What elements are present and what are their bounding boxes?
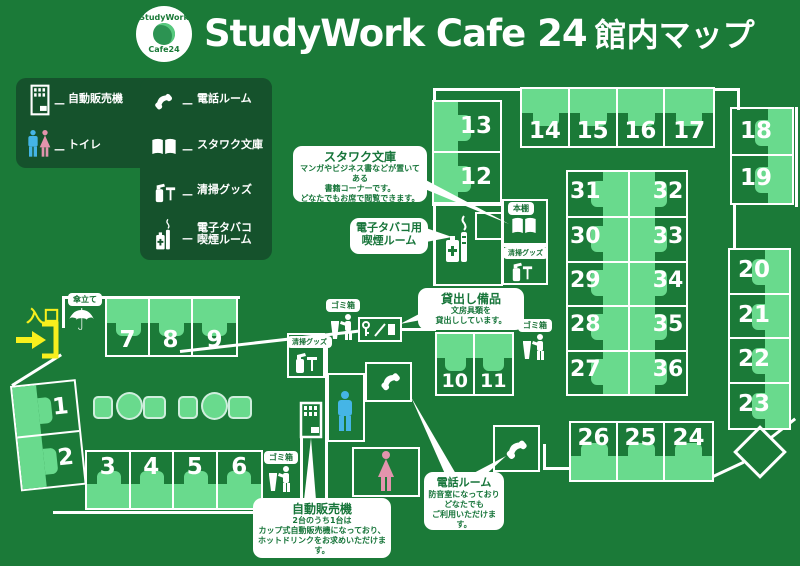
lounge-table (178, 396, 198, 419)
seat-24: 24 (665, 423, 712, 480)
chair (37, 396, 53, 423)
seat-number-12: 12 (460, 164, 492, 190)
wall (795, 107, 798, 207)
seat-5: 5 (174, 452, 218, 508)
bookshelf-pill: 本棚 (508, 202, 534, 215)
seat-number-17: 17 (665, 118, 713, 144)
seat-number-26: 26 (571, 425, 616, 451)
callout-smoking-title: 電子タバコ用 喫煙ルーム (354, 221, 424, 247)
umbrella-icon: ☂ (68, 306, 95, 336)
callout-phone-body: 防音室になっており (428, 490, 500, 500)
cleaning-goods-pill-left: 清掃グッズ (287, 336, 332, 348)
seat-number-34: 34 (652, 268, 684, 293)
legend-dash: — (54, 143, 65, 156)
seat-number-1: 1 (51, 393, 70, 421)
seat-15: 15 (570, 89, 618, 146)
desk-center-line (628, 172, 630, 394)
callout-phone-body: どなたでも (428, 500, 500, 510)
ecig-icon-map (444, 214, 472, 266)
seat-number-7: 7 (107, 327, 148, 353)
trash-icon-1 (266, 463, 296, 493)
seat-group-g1312: 1312 (432, 100, 502, 206)
seat-number-5: 5 (174, 454, 216, 480)
trash-pill-2: ゴミ箱 (326, 299, 360, 312)
seat-group-g789: 789 (105, 297, 238, 357)
seat-17: 17 (665, 89, 713, 146)
seat-number-29: 29 (570, 268, 600, 293)
lounge-table (228, 396, 252, 419)
seat-group-g1011: 1011 (435, 332, 514, 396)
callout-bunko-title: スタワク文庫 (297, 150, 423, 164)
trash-icon-3 (520, 331, 550, 361)
seat-group-g36: 3456 (85, 450, 263, 510)
seat-number-32: 32 (652, 179, 684, 204)
umbrella-stand-pill: 傘立て (68, 293, 102, 306)
seat-number-13: 13 (460, 113, 492, 139)
lounge-table (143, 396, 166, 419)
desk-row-divider (568, 305, 686, 307)
desk-row-divider (568, 216, 686, 218)
toilet-male-icon (336, 391, 354, 433)
seat-number-8: 8 (150, 327, 191, 353)
seat-number-25: 25 (618, 425, 663, 451)
legend-dash: — (54, 97, 65, 110)
cleaning-icon-right (509, 259, 535, 283)
seat-number-4: 4 (131, 454, 173, 480)
seat-number-20: 20 (738, 257, 770, 283)
seat-21: 21 (730, 295, 789, 340)
wall (710, 461, 744, 479)
seat-19: 19 (732, 156, 792, 203)
seat-number-16: 16 (618, 118, 664, 144)
callout-vending-title: 自動販売機 (257, 502, 387, 516)
logo-top-text: StudyWork (139, 14, 189, 22)
seat-group-g2023: 20212223 (728, 248, 791, 430)
seat-10: 10 (437, 334, 475, 394)
callout-vending-body: カップ式自動販売機になっており、 (257, 526, 387, 536)
seat-number-18: 18 (740, 118, 772, 144)
seat-14: 14 (522, 89, 570, 146)
callout-lending-body: 貸出ししています。 (422, 316, 520, 326)
seat-6: 6 (218, 452, 262, 508)
seat-12: 12 (434, 153, 500, 204)
seat-number-19: 19 (740, 165, 772, 191)
lounge-table (93, 396, 113, 419)
ecig-icon (152, 218, 176, 252)
callout-vending: 自動販売機 2台のうち1台は カップ式自動販売機になっており、 ホットドリンクを… (253, 498, 391, 558)
book-icon (150, 137, 178, 157)
phone-icon (152, 90, 174, 112)
callout-bunko-body: どなたでもお席で閲覧できます。 (297, 194, 423, 204)
smoking-room-inner (475, 212, 503, 240)
legend-label-phone: 電話ルーム (197, 93, 252, 105)
lounge-table-round (201, 392, 228, 420)
seat-3: 3 (87, 452, 131, 508)
callout-lending: 貸出し備品 文房具類を 貸出ししています。 (418, 288, 524, 330)
legend-dash: — (182, 232, 193, 245)
callout-phone: 電話ルーム 防音室になっており どなたでも ご利用いただけます。 (424, 472, 504, 530)
seat-number-3: 3 (87, 454, 129, 480)
seat-group-desk: 31323033293428352736 (566, 170, 688, 396)
seat-number-9: 9 (193, 327, 236, 353)
desk-row-divider (568, 261, 686, 263)
cleaning-goods-pill-right: 清掃グッズ (503, 247, 548, 259)
seat-8: 8 (150, 299, 193, 355)
seat-4: 4 (131, 452, 175, 508)
cleaning-icon (152, 180, 178, 204)
studywork-logo: StudyWork Cafe24 (136, 6, 192, 62)
callout-bunko-body: マンガやビジネス書などが置いてある (297, 164, 423, 184)
callout-lending-body: 文房具類を (422, 306, 520, 316)
seat-group-g262524: 262524 (569, 421, 714, 482)
seat-number-22: 22 (738, 346, 770, 372)
seat-number-24: 24 (665, 425, 712, 451)
callout-vending-body: ホットドリンクをお求めいただけます。 (257, 536, 387, 556)
logo-globe-icon (153, 23, 175, 45)
legend-dash: — (182, 143, 193, 156)
legend-label-ecig: 電子タバコ 喫煙ルーム (197, 222, 252, 246)
floor-map: StudyWork Cafe24 StudyWork Cafe 24館内マップ … (0, 0, 800, 566)
page-title: StudyWork Cafe 24館内マップ (204, 10, 755, 56)
seat-11: 11 (475, 334, 513, 394)
lounge-table-round (116, 392, 143, 420)
entrance-label: 入口 (26, 302, 60, 327)
seat-group-g12: 12 (10, 379, 87, 491)
wall (62, 296, 65, 328)
wall (545, 467, 571, 470)
legend-label-vending-machine: 自動販売機 (68, 93, 123, 105)
seat-number-14: 14 (522, 118, 568, 144)
seat-22: 22 (730, 339, 789, 384)
callout-vending-body: 2台のうち1台は (257, 516, 387, 526)
vending-machine-icon (28, 84, 52, 116)
callout-smoking: 電子タバコ用 喫煙ルーム (350, 218, 428, 254)
seat-number-2: 2 (56, 443, 75, 471)
seat-26: 26 (571, 423, 618, 480)
phone-icon-room1 (378, 369, 402, 393)
seat-1: 1 (12, 381, 79, 438)
chair (43, 447, 59, 474)
toilet-female-icon (377, 451, 395, 493)
seat-number-35: 35 (652, 312, 684, 337)
book-icon-map (510, 216, 538, 236)
callout-bunko: スタワク文庫 マンガやビジネス書などが置いてある 書籍コーナーです。 どなたでも… (293, 146, 427, 202)
logo-bottom-text: Cafe24 (148, 46, 179, 54)
seat-number-15: 15 (570, 118, 616, 144)
seat-number-36: 36 (652, 357, 684, 382)
lending-items-icons (361, 320, 399, 339)
seat-number-33: 33 (652, 224, 684, 249)
callout-phone-title: 電話ルーム (428, 476, 500, 490)
seat-number-30: 30 (570, 224, 600, 249)
vending-machine-icon-map (299, 401, 323, 439)
seat-9: 9 (193, 299, 236, 355)
seat-number-31: 31 (570, 179, 600, 204)
seat-25: 25 (618, 423, 665, 480)
trash-pill-1: ゴミ箱 (264, 451, 298, 464)
page-title-latin: StudyWork Cafe 24 (204, 12, 587, 55)
seat-number-11: 11 (475, 370, 513, 392)
seat-18: 18 (732, 109, 792, 156)
desk-row-divider (568, 350, 686, 352)
seat-number-21: 21 (738, 302, 770, 328)
seat-group-g1819: 1819 (730, 107, 794, 205)
legend-label-toilet: トイレ (68, 139, 101, 151)
callout-bunko-body: 書籍コーナーです。 (297, 184, 423, 194)
legend-dash: — (182, 97, 193, 110)
seat-16: 16 (618, 89, 666, 146)
seat-number-23: 23 (738, 391, 770, 417)
seat-20: 20 (730, 250, 789, 295)
wall (733, 203, 736, 250)
seat-group-g1417: 14151617 (520, 87, 715, 148)
callout-phone-body: ご利用いただけます。 (428, 510, 500, 530)
seat-23: 23 (730, 384, 789, 429)
legend-label-cleaning: 清掃グッズ (197, 184, 252, 196)
phone-icon-room2 (503, 436, 529, 462)
seat-number-10: 10 (437, 370, 473, 392)
toilet-icon (24, 130, 54, 158)
seat-number-27: 27 (570, 357, 600, 382)
seat-13: 13 (434, 102, 500, 153)
seat-7: 7 (107, 299, 150, 355)
cleaning-icon (293, 349, 319, 375)
legend-label-book: スタワク文庫 (197, 139, 263, 151)
seat-number-28: 28 (570, 312, 600, 337)
callout-lending-title: 貸出し備品 (422, 292, 520, 306)
seat-number-6: 6 (218, 454, 262, 480)
legend-dash: — (182, 188, 193, 201)
seat-2: 2 (18, 432, 85, 489)
page-title-jp: 館内マップ (595, 16, 755, 54)
trash-icon-2 (328, 311, 358, 341)
